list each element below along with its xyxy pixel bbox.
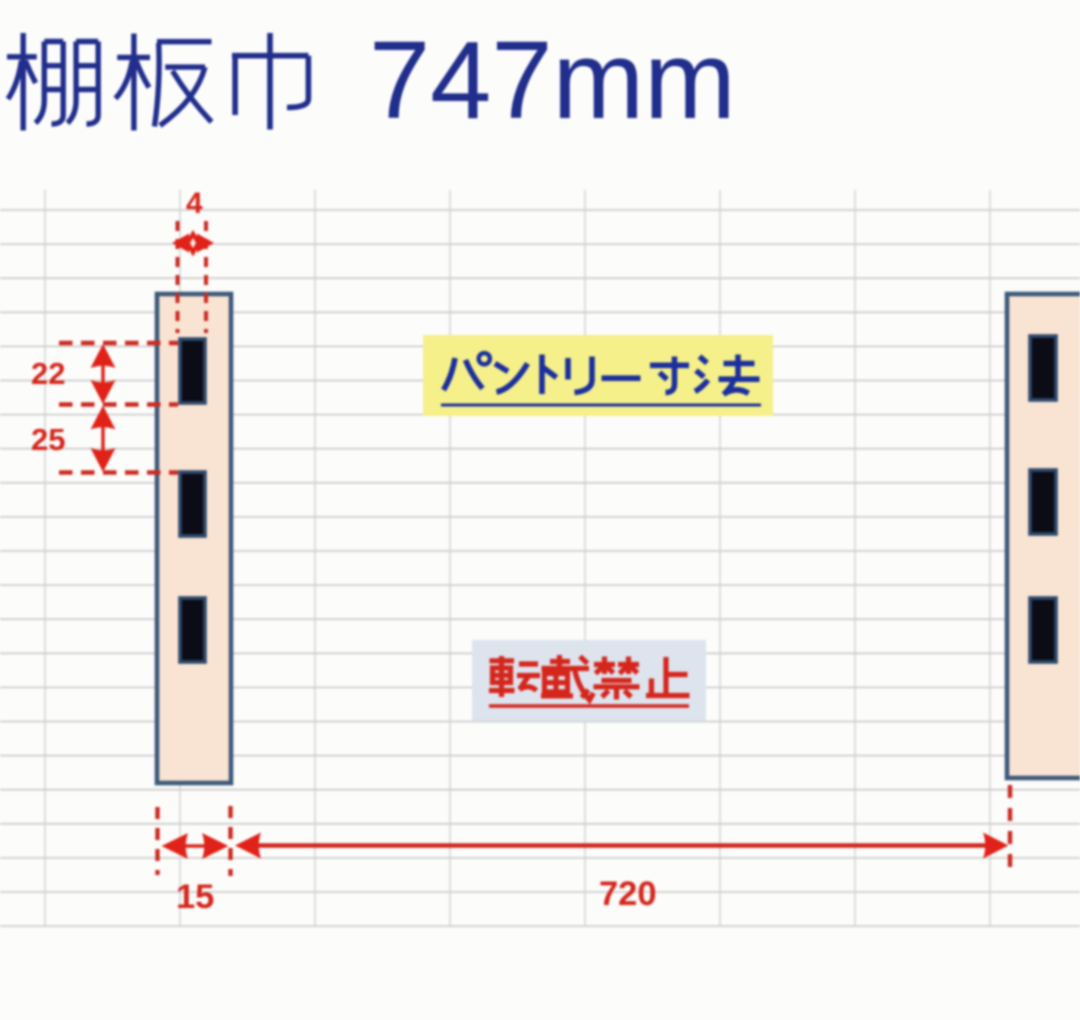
svg-text:25: 25 bbox=[31, 422, 65, 457]
svg-text:15: 15 bbox=[176, 878, 214, 916]
svg-text:747mm: 747mm bbox=[369, 19, 736, 142]
svg-text:720: 720 bbox=[599, 875, 657, 913]
svg-text:22: 22 bbox=[31, 356, 65, 391]
svg-text:4: 4 bbox=[186, 187, 203, 220]
